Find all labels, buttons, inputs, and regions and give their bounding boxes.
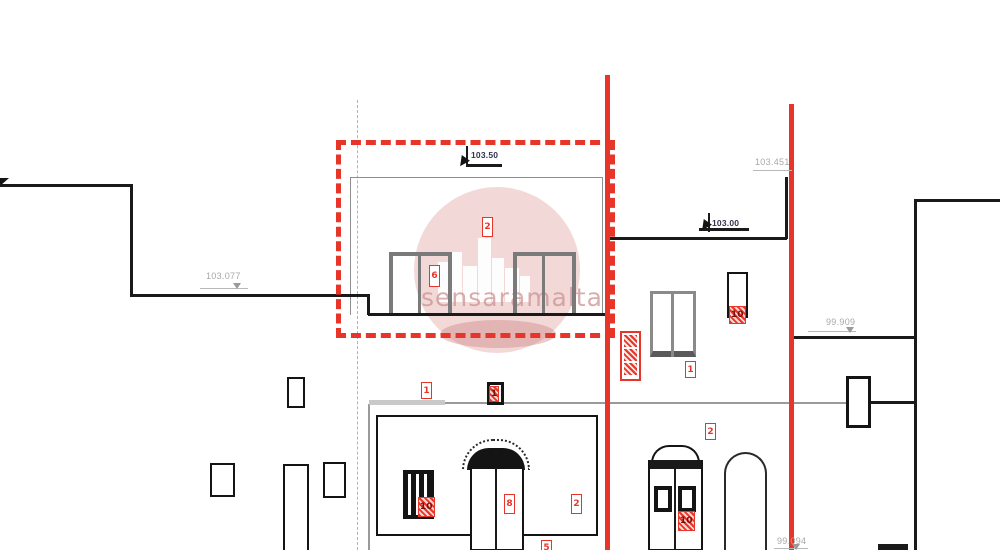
right-building-wall — [914, 199, 917, 550]
right-building-top — [914, 199, 1000, 202]
upper-level-bar — [466, 164, 502, 167]
left-roofline — [0, 184, 132, 187]
section-line-left — [605, 75, 610, 550]
right-curb — [878, 544, 908, 550]
right-door-panel-right — [678, 486, 696, 512]
right-door-divider — [674, 460, 676, 550]
right-building-window — [846, 376, 871, 428]
hatch-marker-icon — [624, 349, 637, 361]
dim-neighbour-roof: 103.451 — [755, 157, 790, 167]
tall-opening-left — [283, 464, 309, 550]
dim-neighbour-roof-line — [753, 170, 792, 171]
tag-mid-left-wall: 1 — [421, 382, 432, 399]
tag-louver: 10 — [418, 497, 435, 517]
stringcourse-line — [445, 402, 847, 404]
right-door-panel-left — [654, 486, 672, 512]
tag-upper-window: 6 — [429, 265, 440, 287]
dim-left-parapet-arrow-icon — [233, 283, 241, 289]
highlight-dashed-box — [336, 140, 615, 338]
tag-mid-wall-right: 2 — [705, 423, 716, 440]
right-parapet-line — [794, 336, 916, 339]
small-window-left — [210, 463, 235, 497]
small-window-left-2 — [323, 462, 346, 498]
tag-ground: 5 — [541, 540, 552, 550]
left-parapet-line — [130, 294, 370, 297]
main-door — [470, 467, 524, 550]
chimney-box — [287, 377, 305, 408]
dim-upper-roof: 103.50 — [471, 150, 498, 160]
tag-right-door: 10 — [678, 511, 695, 531]
dim-left-parapet: 103.077 — [206, 271, 241, 281]
party-wall-line — [368, 404, 370, 550]
middle-parapet-step — [785, 177, 788, 239]
tag-facade-wall: 2 — [571, 494, 582, 514]
hatch-stack — [620, 331, 641, 381]
dim-ground-right-arrow-icon — [792, 544, 800, 550]
stringcourse-line-right — [871, 401, 916, 404]
tag-upper-wall: 2 — [482, 217, 493, 237]
middle-window-mullion — [671, 291, 674, 357]
tag-vent: 1 — [489, 386, 499, 402]
dim-right-parapet: 99.909 — [826, 317, 855, 327]
elevation-drawing: sensaramalta 103.077 103.50 2 6 103.451 … — [0, 0, 1000, 550]
arched-opening-outline — [724, 452, 767, 550]
dim-middle-roof: 103.00 — [712, 218, 739, 228]
main-door-divider — [495, 467, 497, 550]
dim-right-parapet-arrow-icon — [846, 327, 854, 333]
middle-roofline — [610, 237, 787, 240]
left-wall-step — [130, 184, 133, 296]
dim-ground-right-line — [774, 548, 808, 549]
tag-main-door: 8 — [504, 494, 515, 514]
tag-mid-window: 1 — [685, 361, 696, 378]
tag-narrow-window: 10 — [729, 306, 746, 324]
hatch-marker-icon — [624, 335, 637, 347]
hatch-marker-icon — [624, 363, 637, 375]
stringcourse-thick — [369, 400, 445, 405]
